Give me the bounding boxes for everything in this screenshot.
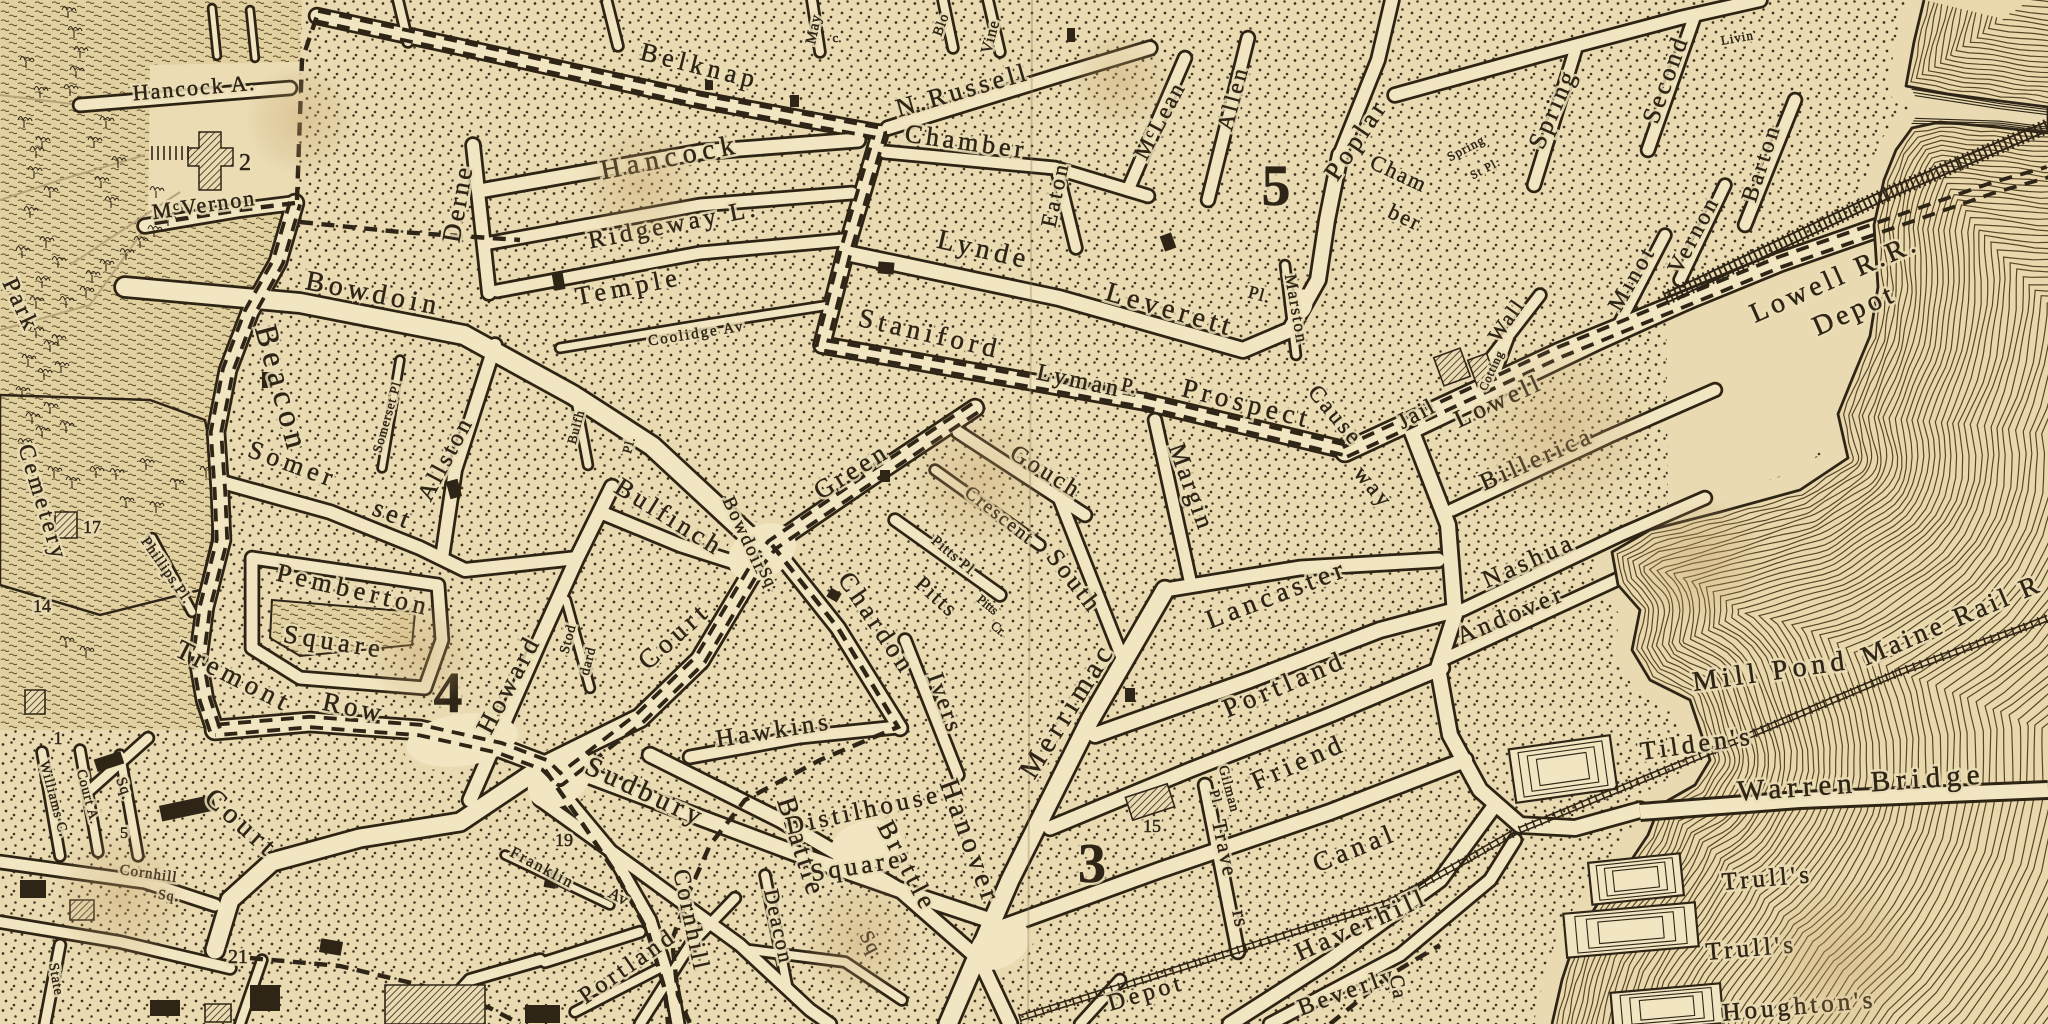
svg-text:15: 15 — [1143, 816, 1161, 836]
svg-text:3: 3 — [1078, 833, 1106, 895]
svg-text:19: 19 — [555, 830, 573, 850]
svg-text:14: 14 — [33, 596, 51, 616]
svg-text:1: 1 — [54, 728, 63, 748]
svg-text:2: 2 — [239, 150, 251, 176]
svg-text:c.: c. — [832, 30, 841, 45]
svg-text:5: 5 — [1262, 153, 1291, 218]
svg-text:21: 21 — [228, 946, 248, 968]
svg-text:17: 17 — [83, 517, 101, 537]
svg-text:Ca: Ca — [1385, 973, 1411, 1001]
